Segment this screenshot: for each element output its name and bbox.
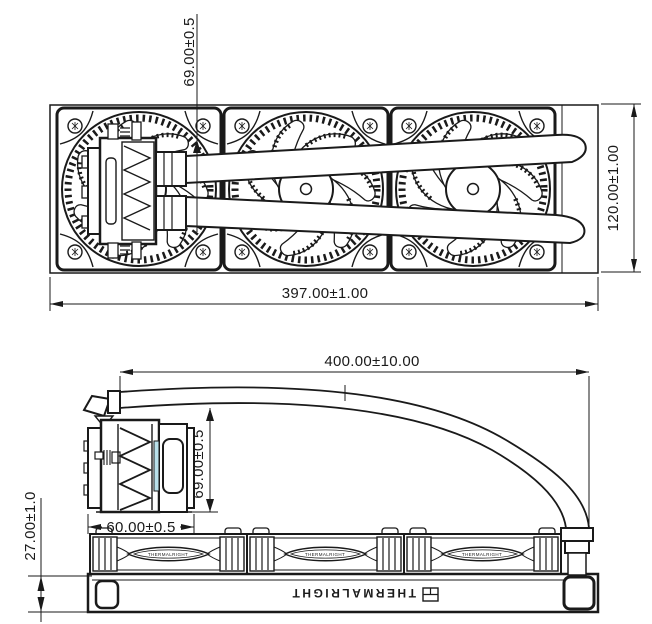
dim-radiator-width-label: 120.00±1.00 xyxy=(605,145,622,232)
dim-radiator-thickness-label: 27.00±1.0 xyxy=(22,491,39,560)
radiator-left-port xyxy=(96,581,118,608)
radiator-brand: THERMALRIGHT xyxy=(290,586,438,601)
fan-top-3 xyxy=(391,108,555,270)
fan-side-1-label: THERMALRIGHT xyxy=(148,552,188,557)
dim-pump-height-label: 69.00±0.5 xyxy=(190,429,207,498)
radiator-brand-text: THERMALRIGHT xyxy=(290,586,416,600)
dim-pump-length-label: 60.00±0.5 xyxy=(106,519,175,536)
pump-accent-strip xyxy=(154,441,159,491)
dim-radiator-width: 120.00±1.00 xyxy=(601,104,641,272)
pump-side xyxy=(84,391,194,512)
dim-radiator-thickness: 27.00±1.0 xyxy=(22,491,92,622)
drawing-canvas: 69.00±0.5 397.00±1.00 120.00±1.00 xyxy=(0,0,652,624)
dim-radiator-length: 397.00±1.00 xyxy=(50,277,598,311)
dim-top-pump-offset-label: 69.00±0.5 xyxy=(181,17,198,86)
top-view: 69.00±0.5 397.00±1.00 120.00±1.00 xyxy=(50,14,641,311)
pump-elbow-fitting xyxy=(84,396,110,416)
fan-side-2-label: THERMALRIGHT xyxy=(305,552,345,557)
side-view: THERMALRIGHT THERMALRIGHT THERMALRIGHT T… xyxy=(22,353,598,622)
technical-drawing: 69.00±0.5 397.00±1.00 120.00±1.00 xyxy=(0,0,652,624)
dim-radiator-length-label: 397.00±1.00 xyxy=(282,285,369,302)
radiator-side: THERMALRIGHT xyxy=(88,574,598,612)
dim-tube-length-label: 400.00±10.00 xyxy=(324,353,419,370)
thermalright-logo-icon xyxy=(423,588,438,601)
tube-fitting-collar xyxy=(561,528,593,541)
fan-top-2 xyxy=(224,108,388,270)
fan-side-3-label: THERMALRIGHT xyxy=(462,552,502,557)
radiator-right-fitting-block xyxy=(564,577,594,609)
